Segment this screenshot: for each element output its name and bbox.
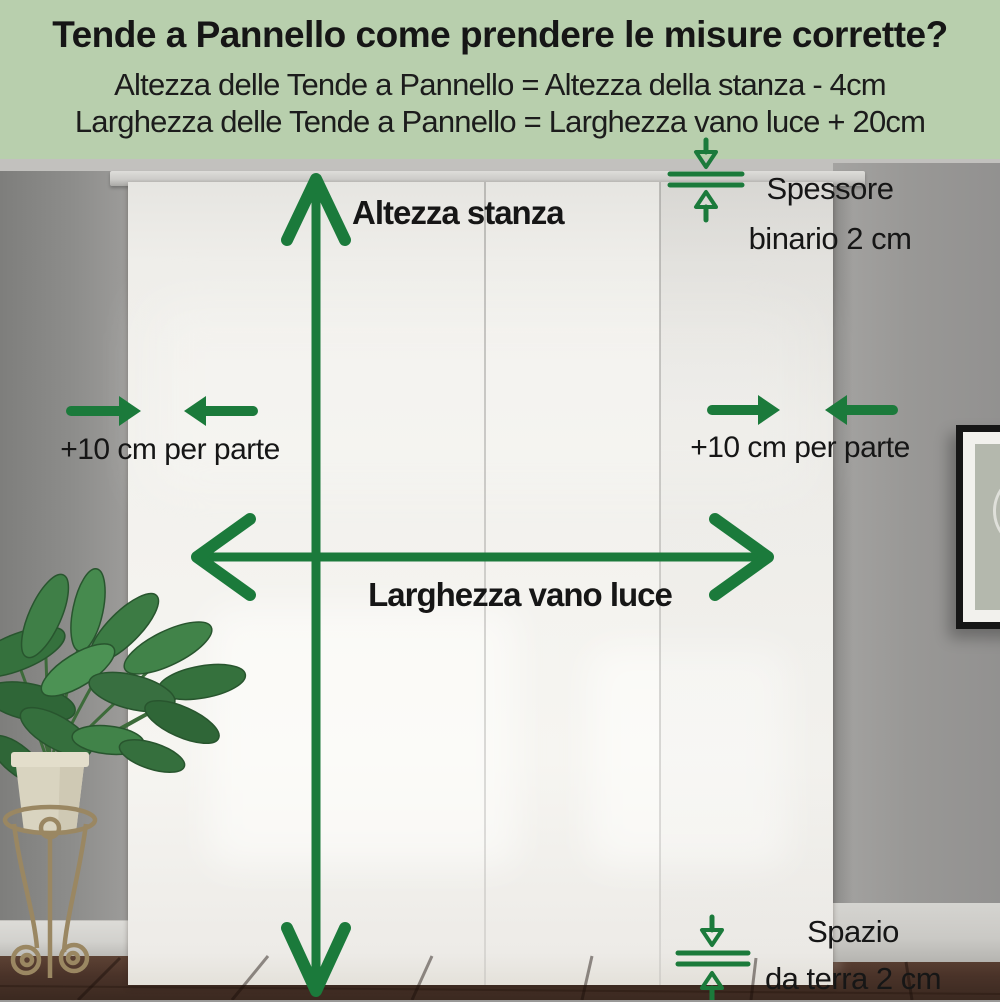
rail-thickness-label: Spessore binario 2 cm bbox=[728, 164, 932, 264]
wall-art-frame bbox=[956, 425, 1000, 629]
left-wall bbox=[0, 171, 133, 921]
header-banner: Tende a Pannello come prendere le misure… bbox=[0, 0, 1000, 159]
floor-gap-label-line1: Spazio bbox=[731, 908, 975, 955]
room-height-label: Altezza stanza bbox=[352, 194, 564, 232]
wall-art-circle bbox=[993, 472, 1000, 550]
page-title: Tende a Pannello come prendere le misure… bbox=[0, 14, 1000, 56]
opening-width-label: Larghezza vano luce bbox=[345, 576, 695, 614]
curtain-shadow bbox=[833, 184, 853, 904]
infographic-page: { "header": { "title": "Tende a Pannello… bbox=[0, 0, 1000, 1000]
right-allowance-label: +10 cm per parte bbox=[656, 431, 944, 465]
width-formula: Larghezza delle Tende a Pannello = Largh… bbox=[0, 104, 1000, 140]
floor-gap-label: Spazio da terra 2 cm bbox=[731, 908, 975, 1002]
window-glow bbox=[208, 607, 518, 867]
wall-art bbox=[975, 444, 1000, 610]
rail-thickness-label-line1: Spessore bbox=[728, 164, 932, 214]
left-allowance-label: +10 cm per parte bbox=[26, 433, 314, 467]
panel-seam bbox=[314, 182, 316, 985]
left-baseboard bbox=[0, 920, 133, 956]
height-formula: Altezza delle Tende a Pannello = Altezza… bbox=[0, 67, 1000, 103]
floor-gap-label-line2: da terra 2 cm bbox=[731, 955, 975, 1002]
rail-thickness-label-line2: binario 2 cm bbox=[728, 214, 932, 264]
